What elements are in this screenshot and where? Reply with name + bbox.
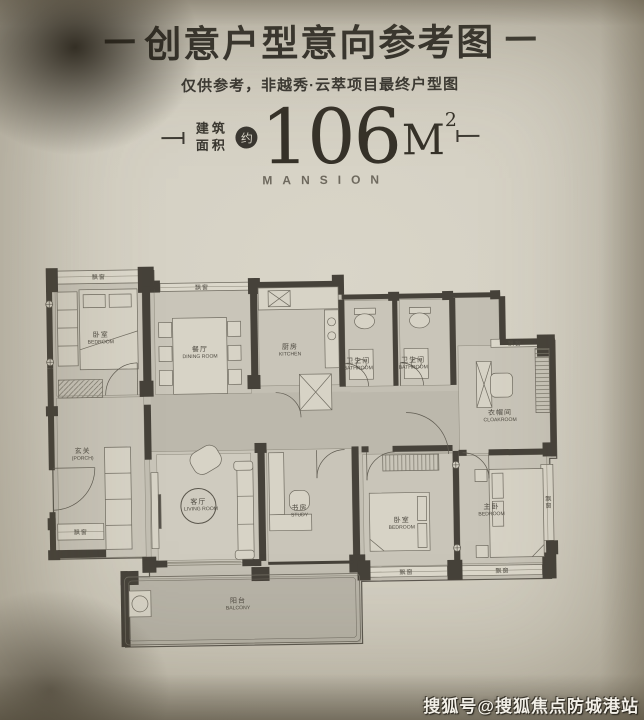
shoe-cabinet-icon — [104, 447, 132, 549]
area-unit-letter: M — [402, 115, 445, 164]
poster-photo: 创意户型意向参考图 仅供参考，非越秀·云萃项目最终户型图 建筑 面积 约 106… — [0, 0, 644, 720]
room-label-en: BALCONY — [226, 606, 250, 613]
washing-machine-icon — [129, 591, 151, 617]
wardrobe-icon — [57, 292, 78, 366]
room-label-zh: 客厅 — [181, 497, 215, 507]
room-label-en: LIVING ROOM — [184, 506, 213, 513]
watermark: 搜狐号@搜狐焦点防城港站 — [423, 692, 639, 717]
bay-window-label: 飘窗 — [399, 567, 413, 576]
shaft-icon-kitchen — [299, 374, 332, 410]
room-label-en: (PORCH) — [72, 456, 94, 463]
room-label-en: BATHROOM — [344, 366, 373, 373]
room-label-porch: 玄关 (PORCH) — [70, 447, 96, 464]
area-label: 建筑 面积 — [196, 121, 228, 155]
area-rule-left — [162, 137, 184, 139]
title-dash-right — [505, 37, 535, 41]
floorplan-drawing — [41, 248, 599, 669]
floorplan: 卧室 BEDROOM 餐厅 DINING ROOM 厨房 KITCHEN 卫生间… — [41, 248, 599, 669]
room-label-bedroom-upper: 卧室 BEDROOM — [85, 331, 116, 348]
bay-window-label: 飘窗 — [508, 338, 522, 347]
area-label-line1: 建筑 — [196, 121, 228, 138]
area-unit-exponent: 2 — [445, 109, 457, 131]
toilet-icon-2 — [409, 307, 430, 328]
room-label-master-bedroom: 主卧 BEDROOM — [476, 503, 507, 520]
room-label-en: DINING ROOM — [182, 354, 217, 361]
poster-content: 创意户型意向参考图 仅供参考，非越秀·云萃项目最终户型图 建筑 面积 约 106… — [0, 0, 644, 720]
room-label-en: BATHROOM — [399, 365, 428, 372]
shaft-icon-cloakroom — [476, 361, 492, 407]
room-label-study: 书房 STUDY — [289, 504, 310, 521]
room-label-en: CLOAKROOM — [483, 418, 516, 425]
room-label-dining-room: 餐厅 DINING ROOM — [179, 345, 221, 363]
brand-caption: MANSION — [0, 170, 643, 188]
area-row: 建筑 面积 约 106 M2 — [0, 103, 643, 172]
cloakroom-wardrobe-icon — [535, 348, 550, 412]
title-dash-left — [104, 39, 134, 43]
bay-window-label: 飘窗 — [92, 272, 106, 281]
room-label-balcony: 阳台 BALCONY — [224, 597, 253, 614]
room-label-en: STUDY — [291, 513, 308, 520]
bay-window-label: 飘窗 — [195, 282, 209, 291]
poster-header: 创意户型意向参考图 仅供参考，非越秀·云萃项目最终户型图 建筑 面积 约 106… — [0, 0, 643, 189]
toilet-icon-1 — [354, 308, 375, 329]
approx-badge: 约 — [236, 127, 258, 149]
room-label-bathroom-2: 卫生间 BATHROOM — [396, 356, 430, 373]
room-label-zh: 书房 — [289, 504, 309, 513]
area-value: 106 — [261, 104, 401, 170]
bay-window-label: 飘窗 — [543, 495, 552, 509]
room-label-en: BEDROOM — [389, 525, 415, 532]
room-label-kitchen: 厨房 KITCHEN — [277, 343, 304, 360]
room-label-en: BEDROOM — [88, 340, 114, 347]
room-label-bedroom-lower: 卧室 BEDROOM — [386, 516, 417, 533]
area-unit: M2 — [402, 109, 457, 164]
room-label-en: KITCHEN — [279, 352, 301, 359]
shoe-rack-icon — [58, 379, 102, 398]
bed-icon-upper — [79, 289, 138, 370]
chair-icon-cloakroom — [490, 373, 512, 397]
page-title: 创意户型意向参考图 — [144, 12, 495, 68]
bay-window-label: 飘窗 — [495, 566, 509, 575]
area-label-line2: 面积 — [196, 138, 228, 155]
area-rule-right — [457, 135, 479, 137]
room-label-bathroom-1: 卫生间 BATHROOM — [341, 357, 375, 374]
title-row: 创意户型意向参考图 — [0, 11, 642, 69]
room-label-cloakroom: 衣帽间 CLOAKROOM — [480, 408, 519, 426]
bay-window-label: 飘窗 — [74, 527, 88, 536]
room-label-en: BEDROOM — [478, 512, 504, 519]
